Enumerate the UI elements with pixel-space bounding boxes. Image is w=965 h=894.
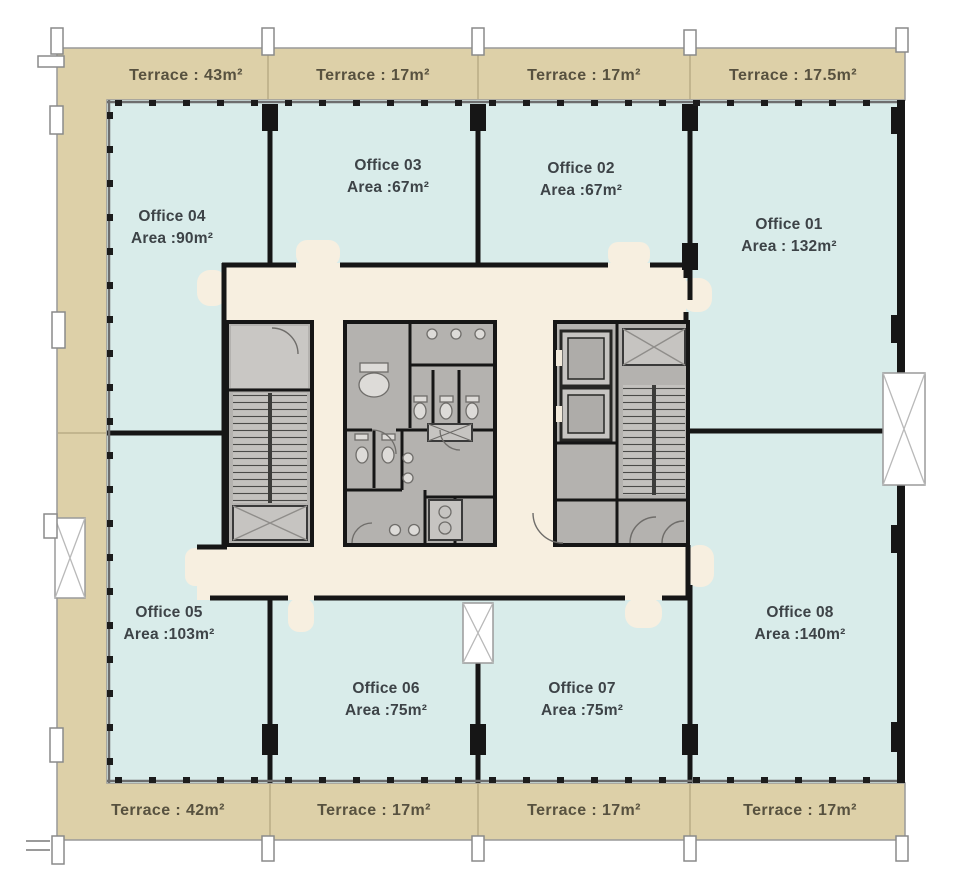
office-02-name: Office 02 [540, 158, 622, 180]
office-04-label: Office 04 Area :90m² [131, 206, 213, 250]
terrace-bottom-3-label: Terrace : 17m² [527, 802, 641, 820]
office-06-name: Office 06 [345, 678, 427, 700]
office-06-label: Office 06 Area :75m² [345, 678, 427, 722]
floor-plan-graphic [0, 0, 965, 894]
office-07-name: Office 07 [541, 678, 623, 700]
office-03-area: Area :67m² [347, 177, 429, 199]
floor-plan: Terrace : 43m² Terrace : 17m² Terrace : … [0, 0, 965, 894]
office-03-name: Office 03 [347, 155, 429, 177]
office-05-area: Area :103m² [124, 624, 215, 646]
office-02-label: Office 02 Area :67m² [540, 158, 622, 202]
elevator-cars [556, 331, 611, 440]
office-04-name: Office 04 [131, 206, 213, 228]
stairwell-west [227, 322, 312, 545]
terrace-bottom-1-label: Terrace : 42m² [111, 802, 225, 820]
office-07-label: Office 07 Area :75m² [541, 678, 623, 722]
elevator-core [533, 322, 688, 545]
terrace-bottom-2-label: Terrace : 17m² [317, 802, 431, 820]
office-01-label: Office 01 Area : 132m² [741, 214, 836, 258]
office-08-label: Office 08 Area :140m² [755, 602, 846, 646]
office-01-area: Area : 132m² [741, 236, 836, 258]
break-lines [26, 841, 50, 850]
office-08-area: Area :140m² [755, 624, 846, 646]
terrace-top-3-label: Terrace : 17m² [527, 67, 641, 85]
office-01-name: Office 01 [741, 214, 836, 236]
office-05-name: Office 05 [124, 602, 215, 624]
office-06-area: Area :75m² [345, 700, 427, 722]
office-03-label: Office 03 Area :67m² [347, 155, 429, 199]
terrace-top-4-label: Terrace : 17.5m² [729, 67, 857, 85]
office-02-area: Area :67m² [540, 180, 622, 202]
office-07-area: Area :75m² [541, 700, 623, 722]
restrooms [345, 322, 495, 545]
terrace-top-2-label: Terrace : 17m² [316, 67, 430, 85]
office-04-area: Area :90m² [131, 228, 213, 250]
office-05-label: Office 05 Area :103m² [124, 602, 215, 646]
terrace-top-1-label: Terrace : 43m² [129, 67, 243, 85]
terrace-bottom-4-label: Terrace : 17m² [743, 802, 857, 820]
office-08-name: Office 08 [755, 602, 846, 624]
